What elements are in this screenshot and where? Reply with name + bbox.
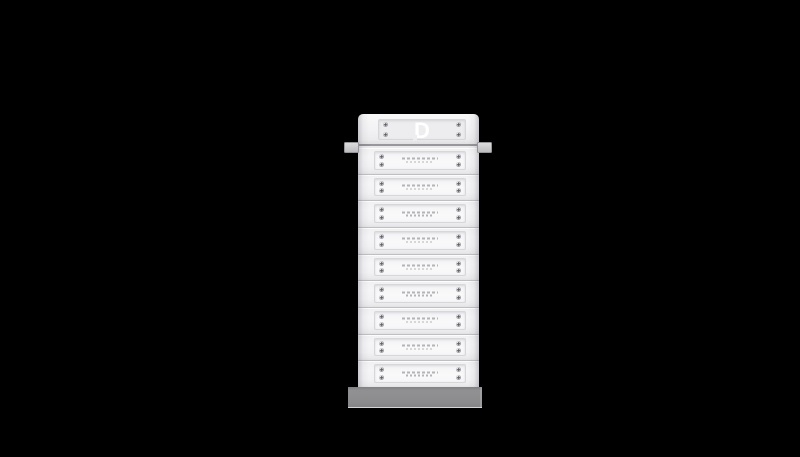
screw-icon [379, 295, 384, 300]
battery-module [358, 254, 479, 281]
product-stage: D [0, 0, 800, 457]
battery-module [358, 174, 479, 201]
screw-icon [379, 341, 384, 346]
battery-module [358, 334, 479, 361]
screw-icon [383, 132, 388, 137]
screw-icon [456, 348, 461, 353]
screw-icon [456, 341, 461, 346]
battery-module [358, 200, 479, 227]
battery-module-panel [374, 311, 466, 330]
screw-icon [456, 122, 461, 127]
screw-icon [379, 268, 384, 273]
battery-module-stack [358, 148, 479, 387]
screw-icon [379, 188, 384, 193]
screw-icon [379, 154, 384, 159]
battery-module-panel [374, 151, 466, 170]
battery-module-panel [374, 284, 466, 303]
screw-icon [456, 242, 461, 247]
screw-icon [379, 367, 384, 372]
screw-icon [456, 162, 461, 167]
module-label-microtext [402, 158, 438, 163]
module-label-microtext [402, 345, 438, 350]
battery-module [358, 280, 479, 307]
screw-icon [456, 295, 461, 300]
screw-icon [379, 234, 384, 239]
screw-icon [379, 322, 384, 327]
screw-icon [456, 322, 461, 327]
battery-module-panel [374, 258, 466, 277]
battery-module-panel [374, 338, 466, 357]
screw-icon [379, 162, 384, 167]
screw-icon [379, 207, 384, 212]
screw-icon [456, 188, 461, 193]
screw-icon [456, 132, 461, 137]
module-label-microtext [402, 185, 438, 190]
screw-icon [379, 287, 384, 292]
battery-module [358, 227, 479, 254]
battery-module-panel [374, 364, 466, 383]
screw-icon [383, 122, 388, 127]
top-cover-panel: D [378, 119, 466, 140]
screw-icon [456, 367, 461, 372]
battery-module [358, 360, 479, 387]
screw-icon [456, 287, 461, 292]
module-label-microtext [402, 371, 438, 376]
top-cover-module: D [358, 114, 479, 144]
battery-module-panel [374, 204, 466, 223]
screw-icon [456, 207, 461, 212]
right-handle [477, 142, 492, 153]
mounting-rail [344, 141, 492, 152]
screw-icon [456, 261, 461, 266]
base-pedestal [348, 387, 482, 407]
screw-icon [456, 234, 461, 239]
screw-icon [379, 215, 384, 220]
screw-icon [456, 154, 461, 159]
logo-gap [413, 134, 417, 140]
screw-icon [379, 375, 384, 380]
battery-module-panel [374, 178, 466, 197]
battery-tower: D [358, 114, 479, 387]
screw-icon [456, 314, 461, 319]
brand-logo: D [414, 119, 430, 141]
module-label-microtext [402, 318, 438, 323]
screw-icon [379, 348, 384, 353]
screw-icon [456, 375, 461, 380]
screw-icon [379, 314, 384, 319]
screw-icon [379, 181, 384, 186]
screw-icon [456, 268, 461, 273]
module-label-microtext [402, 291, 438, 296]
battery-module-panel [374, 231, 466, 250]
module-label-microtext [402, 265, 438, 270]
screw-icon [379, 261, 384, 266]
module-label-microtext [402, 238, 438, 243]
screw-icon [456, 215, 461, 220]
module-label-microtext [402, 211, 438, 216]
screw-icon [456, 181, 461, 186]
screw-icon [379, 242, 384, 247]
battery-module [358, 307, 479, 334]
left-handle [344, 142, 359, 153]
